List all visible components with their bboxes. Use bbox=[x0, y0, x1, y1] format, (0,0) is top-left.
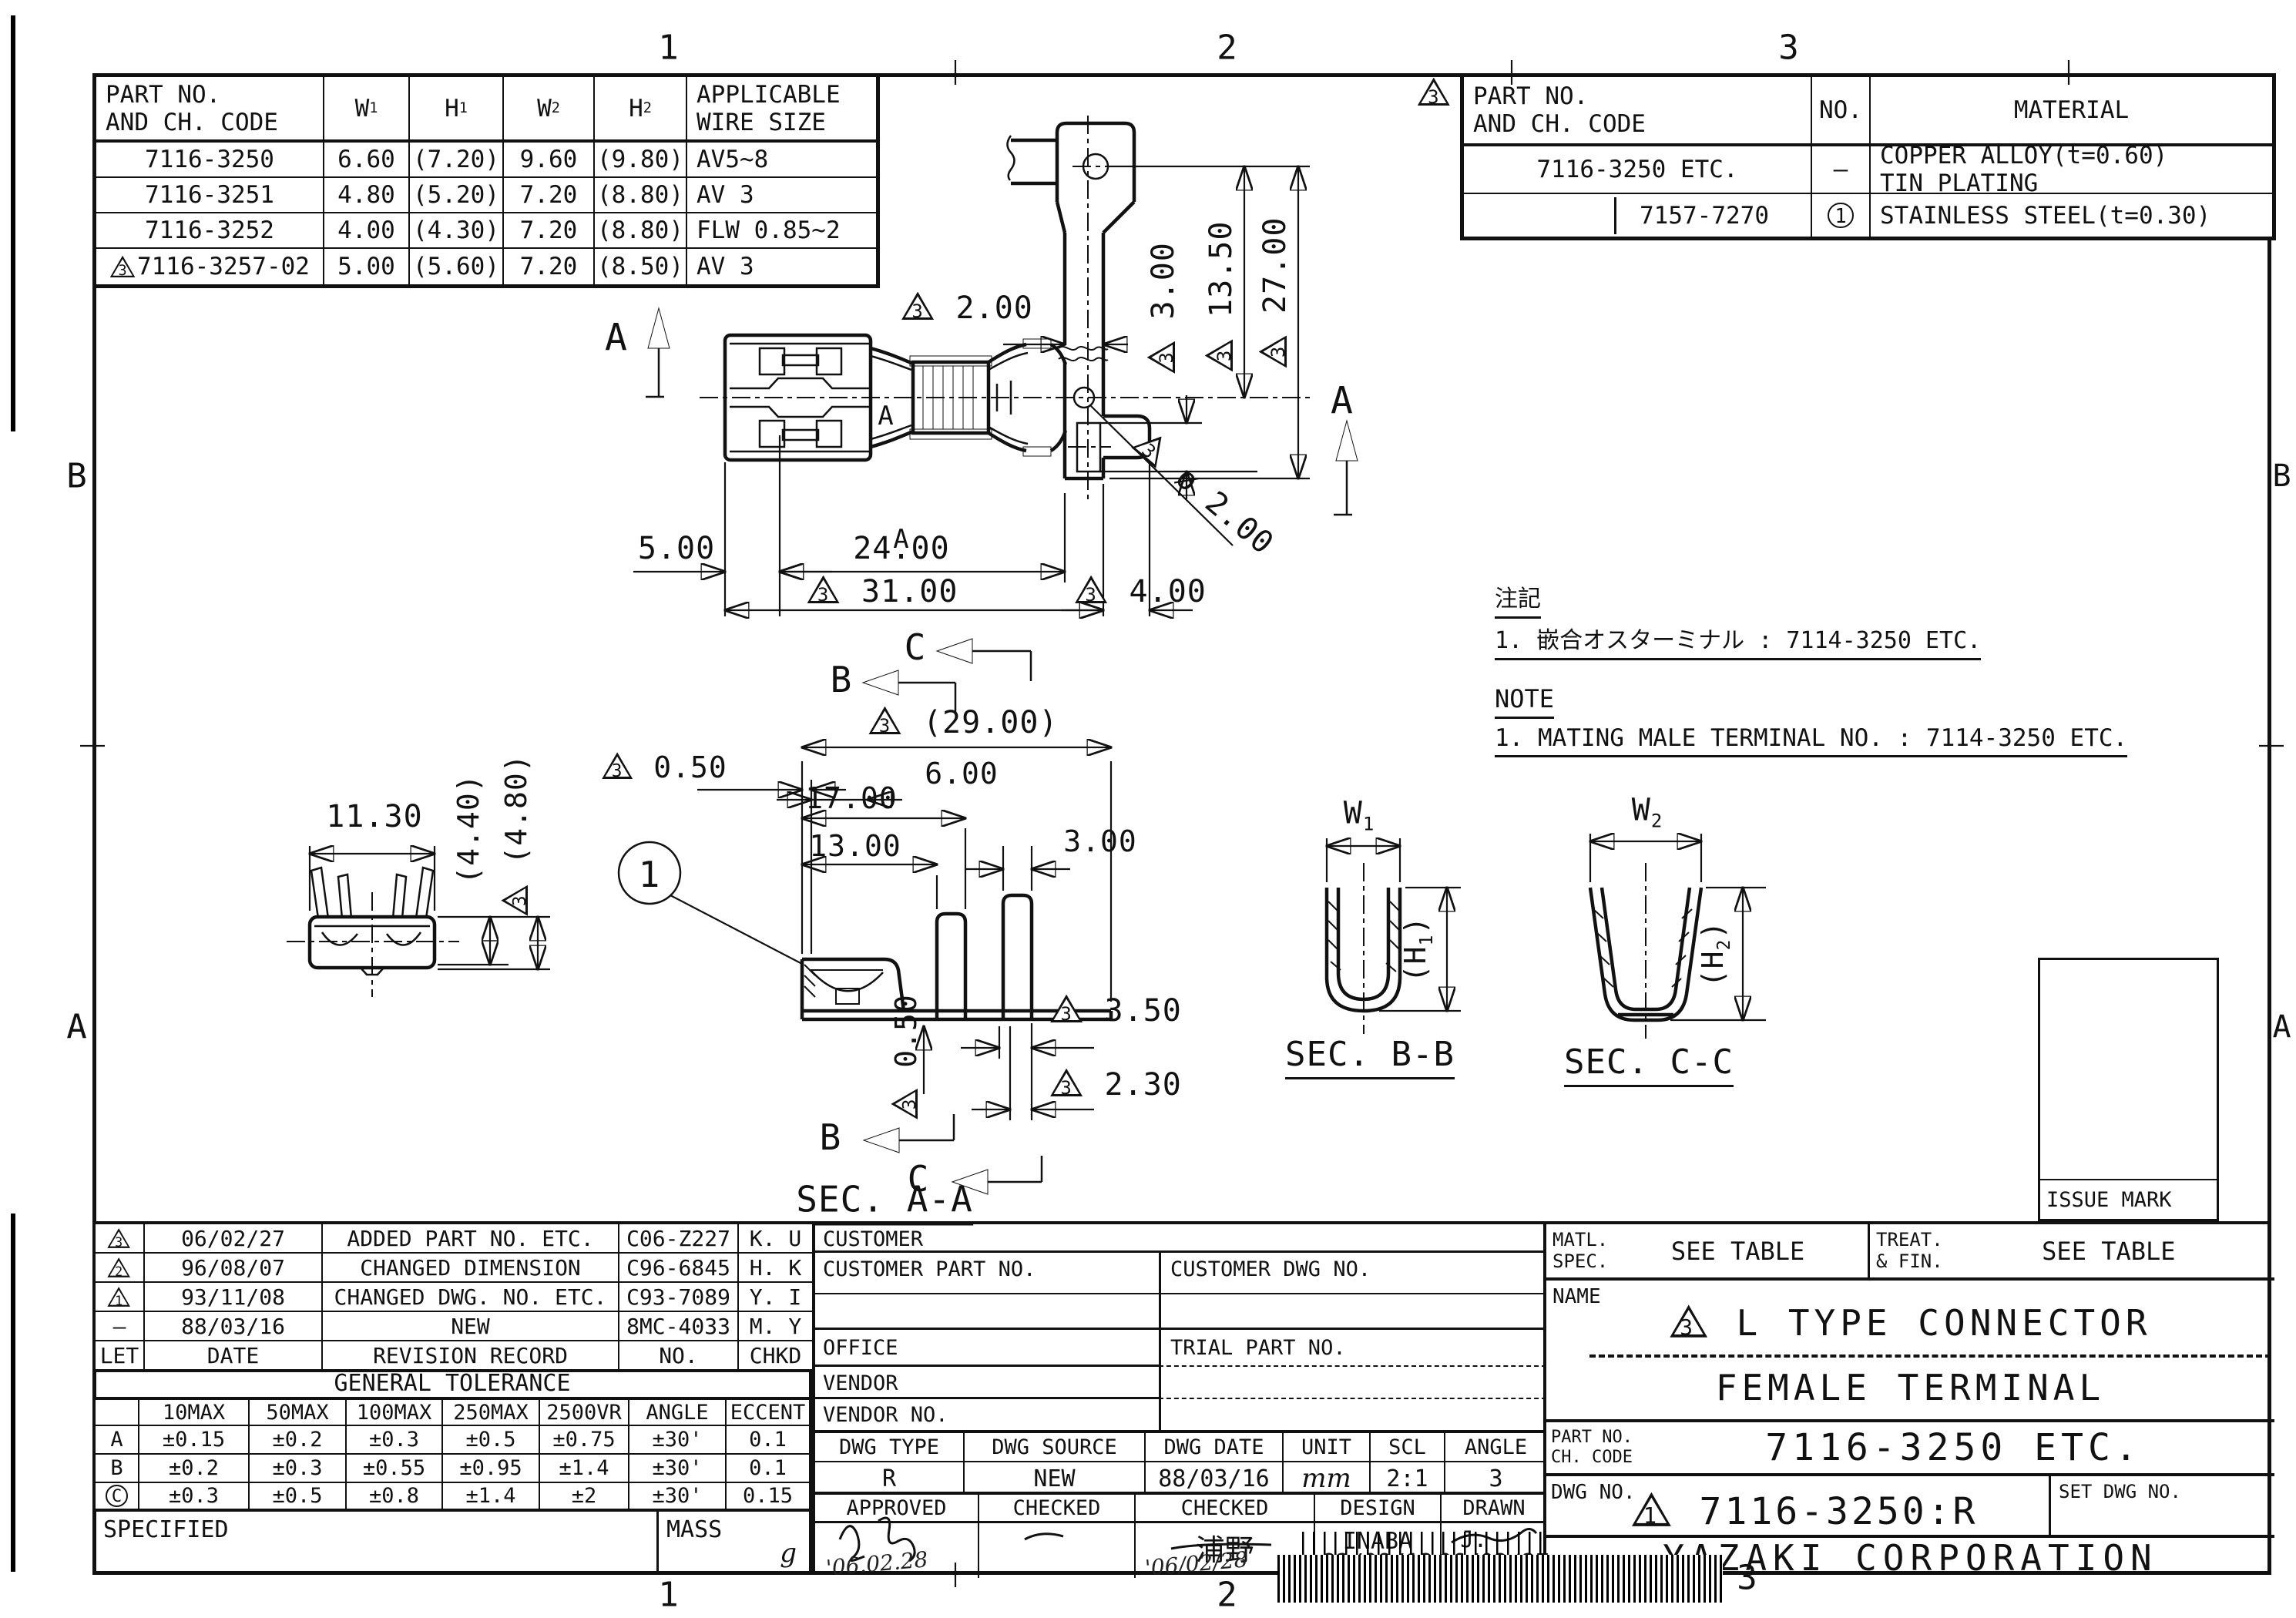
customer-dwg-label: CUSTOMER DWG NO. bbox=[1159, 1253, 1546, 1294]
dim-5-00: 5.00 bbox=[638, 531, 715, 566]
barcode bbox=[1277, 1555, 1723, 1603]
section-marker-c: C bbox=[905, 626, 927, 668]
customer-dwg-value bbox=[1159, 1294, 1546, 1330]
dim-h1: (H1) bbox=[1398, 916, 1437, 982]
vendor-no-label: VENDOR NO. bbox=[815, 1399, 1159, 1430]
plan-view bbox=[633, 116, 1358, 713]
approval-headers: APPROVED CHECKED CHECKED DESIGN DRAWN bbox=[815, 1492, 1546, 1521]
dim-w2: W2 bbox=[1632, 793, 1663, 832]
dwg-no-label: DWG NO. bbox=[1551, 1481, 1636, 1504]
dim-13-00: 13.00 bbox=[809, 829, 901, 863]
dim-11-30: 11.30 bbox=[326, 799, 422, 834]
trial-part-label: TRIAL PART NO. bbox=[1159, 1330, 1546, 1367]
dim-4-00: 3 4.00 bbox=[1074, 574, 1207, 609]
approved-date: '06.02.28 bbox=[825, 1546, 929, 1580]
customer-part-value bbox=[815, 1294, 1159, 1330]
section-marker-b: B bbox=[820, 1116, 842, 1158]
name-cell: NAME 3 L TYPE CONNECTOR FEMALE TERMINAL bbox=[1546, 1281, 2274, 1422]
part-no-value: 7116-3250 ETC. bbox=[1633, 1426, 2274, 1469]
view-arrow-a-right: A bbox=[1331, 379, 1354, 422]
checked1-cell bbox=[979, 1523, 1136, 1578]
matl-label: MATL.SPEC. bbox=[1546, 1230, 1608, 1272]
dim-17-00: 17.00 bbox=[805, 781, 897, 815]
dim-h2: (H2) bbox=[1696, 921, 1734, 987]
customer-part-label: CUSTOMER PART NO. bbox=[815, 1253, 1159, 1294]
dim-w1: W1 bbox=[1344, 796, 1375, 835]
cut-marker-a: A bbox=[893, 524, 909, 555]
general-tolerance-title: GENERAL TOLERANCE bbox=[92, 1369, 812, 1400]
trial-part-value bbox=[1159, 1367, 1546, 1399]
vendor-label: VENDOR bbox=[815, 1367, 1159, 1399]
dim-2-30: 3 2.30 bbox=[1049, 1067, 1182, 1103]
dim-4-40: (4.40) bbox=[451, 774, 485, 884]
dim-strip-width: 3 2.00 bbox=[901, 290, 1033, 326]
sec-bb-view bbox=[1327, 838, 1461, 1034]
set-dwg-cell: SET DWG NO. bbox=[2049, 1476, 2274, 1538]
view-arrow-a-left: A bbox=[605, 316, 628, 359]
dwg-v: R bbox=[815, 1462, 965, 1495]
treat-label: TREAT.& FIN. bbox=[1870, 1230, 1943, 1272]
part-no-cell: PART NO.CH. CODE 7116-3250 ETC. bbox=[1546, 1422, 2274, 1476]
customer-label: CUSTOMER bbox=[815, 1224, 1543, 1253]
dim-3-50: 3 3.50 bbox=[1049, 993, 1182, 1029]
sec-cc-view bbox=[1590, 834, 1766, 1039]
title-block: MATL.SPEC. SEE TABLE TREAT.& FIN. SEE TA… bbox=[1543, 1221, 2271, 1575]
rev-let: 1 bbox=[96, 1283, 145, 1312]
balloon-1: 1 bbox=[639, 854, 661, 895]
dim-3-00-v: 3 3.00 bbox=[1146, 242, 1181, 374]
mass-cell: MASS g bbox=[656, 1512, 809, 1572]
section-marker-b: B bbox=[831, 659, 853, 700]
rev-let: – bbox=[96, 1312, 145, 1341]
dim-4-80: 3 (4.80) bbox=[499, 754, 533, 916]
treat-value: SEE TABLE bbox=[1943, 1237, 2274, 1266]
unit-value: mm bbox=[1284, 1462, 1371, 1495]
office-label: OFFICE bbox=[815, 1330, 1159, 1367]
dim-29-00: 3 (29.00) bbox=[868, 705, 1058, 740]
rev-let: 3 bbox=[96, 1224, 145, 1254]
matl-value: SEE TABLE bbox=[1608, 1237, 1868, 1266]
dwg-row: DWG TYPE DWG SOURCE DWG DATE UNIT SCL AN… bbox=[815, 1430, 1546, 1492]
dim-6-00: 6.00 bbox=[925, 757, 999, 791]
drawing-sheet: 1 2 3 1 2 3 B A B A PART NO.AND CH. CODE… bbox=[0, 0, 2296, 1618]
rev-let: 2 bbox=[96, 1254, 145, 1283]
revision-table: 3 06/02/27 ADDED PART NO. ETC. C06-Z227 … bbox=[92, 1221, 815, 1372]
customer-block: CUSTOMER CUSTOMER PART NO. CUSTOMER DWG … bbox=[812, 1221, 1543, 1575]
name-line2: FEMALE TERMINAL bbox=[1546, 1367, 2274, 1408]
dim-0-50-b: 3 0.50 bbox=[889, 994, 923, 1120]
specified-label: SPECIFIED bbox=[96, 1512, 656, 1572]
part-no-label: PART NO.CH. CODE bbox=[1546, 1428, 1633, 1469]
dwg-no-value: 1 7116-3250:R bbox=[1631, 1490, 1978, 1533]
sec-bb-label: SEC. B-B bbox=[1285, 1035, 1455, 1079]
dim-3-00: 3.00 bbox=[1063, 824, 1137, 858]
specified-row: SPECIFIED MASS g bbox=[92, 1512, 812, 1575]
tolerance-table: 10MAX 50MAX 100MAX 250MAX 2500VR ANGLE E… bbox=[92, 1400, 812, 1512]
mass-unit: g bbox=[780, 1538, 797, 1569]
sec-cc-label: SEC. C-C bbox=[1564, 1042, 1734, 1087]
dim-13-50: 3 13.50 bbox=[1203, 221, 1239, 373]
name-line1: 3 L TYPE CONNECTOR bbox=[1546, 1302, 2274, 1344]
dim-27-00: 3 27.00 bbox=[1257, 217, 1293, 369]
dim-0-50-a: 3 0.50 bbox=[601, 750, 727, 784]
approved-cell: '06.02.28 bbox=[815, 1523, 979, 1578]
checked2-date: '06/02/28 bbox=[1144, 1546, 1249, 1581]
dwg-no-cell: DWG NO. 1 7116-3250:R SET DWG NO. bbox=[1546, 1476, 2274, 1538]
sec-aa-label: SEC. A-A bbox=[796, 1179, 973, 1226]
cut-marker-a: A bbox=[878, 401, 894, 431]
dim-31-00: 3 31.00 bbox=[807, 574, 958, 609]
dwg-h: DWG TYPE bbox=[815, 1433, 965, 1462]
name-divider bbox=[1589, 1354, 2271, 1358]
